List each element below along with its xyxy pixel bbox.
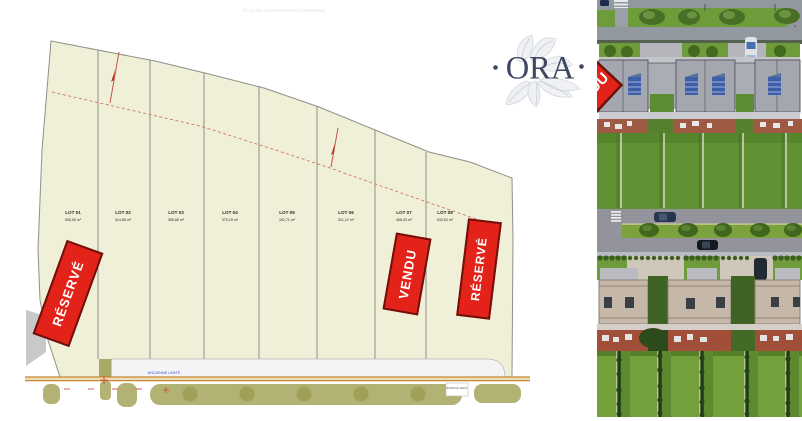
svg-text:LOT 07: LOT 07: [396, 210, 412, 215]
svg-text:505,00 m²: 505,00 m²: [65, 218, 82, 222]
svg-text:ORA: ORA: [506, 51, 575, 87]
svg-text:ANCIENNE LIMITE: ANCIENNE LIMITE: [148, 371, 181, 375]
svg-text:533,53 m²: 533,53 m²: [437, 218, 454, 222]
svg-text:LOT 04: LOT 04: [222, 210, 238, 215]
svg-text:ESPACE VERT: ESPACE VERT: [447, 386, 468, 390]
svg-text:389,86 m²: 389,86 m²: [168, 218, 185, 222]
svg-text:466,43 m²: 466,43 m²: [396, 218, 413, 222]
svg-text:321,12 m²: 321,12 m²: [338, 218, 355, 222]
svg-text:414,85 m²: 414,85 m²: [115, 218, 132, 222]
svg-text:LOT 08: LOT 08: [437, 210, 453, 215]
svg-text:342,71 m²: 342,71 m²: [279, 218, 296, 222]
svg-text:LOT 01: LOT 01: [65, 210, 81, 215]
svg-text:LOT 05: LOT 05: [279, 210, 295, 215]
svg-text:LOT 02: LOT 02: [115, 210, 131, 215]
svg-text:LOT 06: LOT 06: [338, 210, 354, 215]
svg-text:LOT 03: LOT 03: [168, 210, 184, 215]
svg-text:370,15 m²: 370,15 m²: [222, 218, 239, 222]
